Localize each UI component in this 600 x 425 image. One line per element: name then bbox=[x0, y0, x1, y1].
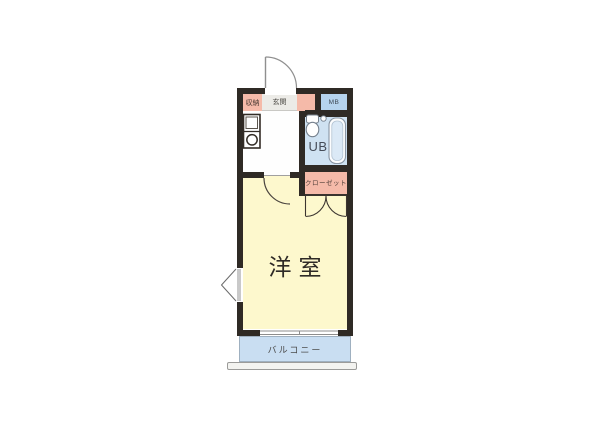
bay-window-icon bbox=[222, 269, 237, 301]
balcony-area: バルコニー bbox=[239, 336, 351, 362]
outer-walls bbox=[237, 88, 353, 336]
balcony-label: バルコニー bbox=[240, 337, 350, 361]
left-window-glass bbox=[237, 269, 241, 301]
balcony-window-opening bbox=[260, 329, 338, 336]
entrance-door-arc bbox=[266, 57, 297, 88]
floor-plan: 収納 玄関 MB クローゼット バルコニー UB 洋室 bbox=[0, 0, 600, 425]
balcony-railing bbox=[227, 362, 357, 370]
entrance-door-opening bbox=[265, 88, 296, 95]
